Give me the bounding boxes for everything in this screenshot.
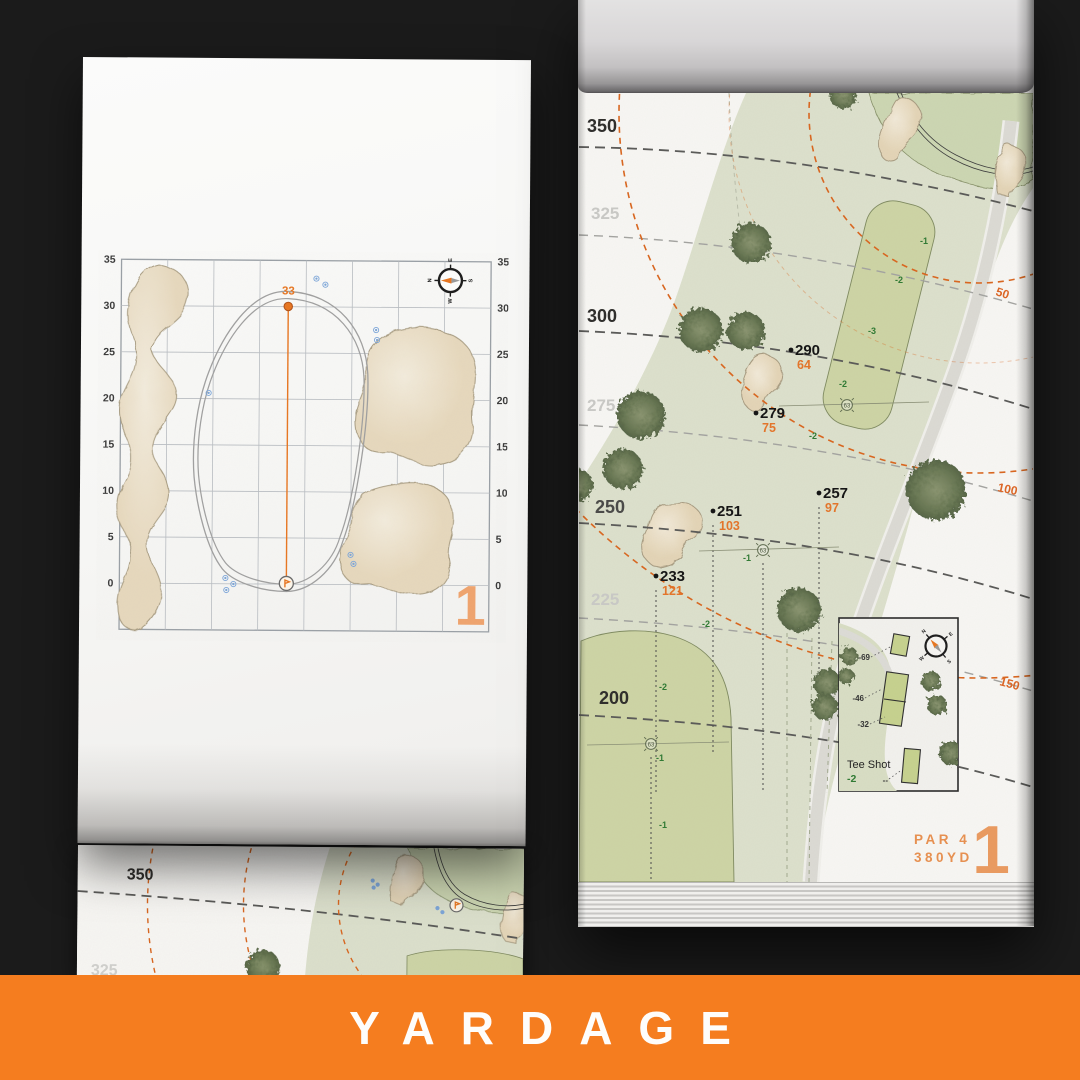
page-curl-shadow [78,743,527,846]
left-booklet-page: 35 30 25 20 15 10 5 0 35 30 25 20 15 10 … [78,57,531,846]
hole-map: 63 63 63 [578,93,1034,882]
under-page-map: 350 325 [77,845,524,981]
page-stack-edge [578,882,1034,927]
spine-shadow [578,0,586,926]
flipped-page-curl [578,0,1034,93]
right-flipbook: 63 63 63 [578,0,1034,926]
paper-grain [579,93,1033,882]
paper-grain [96,250,509,643]
title-banner: YARDAGE [0,975,1080,1080]
banner-title: YARDAGE [323,1001,757,1055]
yardage-book-poster: 35 30 25 20 15 10 5 0 35 30 25 20 15 10 … [0,0,1080,1080]
green-detail-map: 35 30 25 20 15 10 5 0 35 30 25 20 15 10 … [96,250,509,643]
paper-grain [77,845,524,981]
under-page: 350 325 [77,845,524,981]
book-edge-shadow [1016,0,1034,926]
